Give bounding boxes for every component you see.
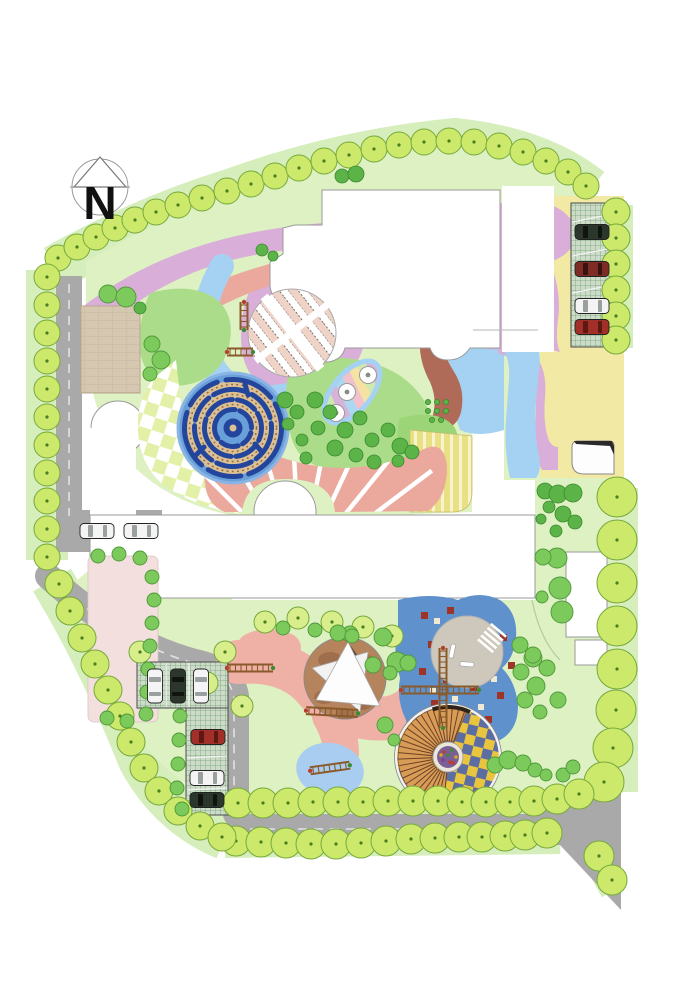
shrub <box>349 448 363 462</box>
shrub <box>365 433 379 447</box>
shrub <box>536 514 546 524</box>
tree <box>573 173 599 199</box>
tree <box>596 690 636 730</box>
green-tree <box>517 692 533 708</box>
mound-dot <box>366 373 371 378</box>
tree <box>117 728 145 756</box>
tree <box>34 544 60 570</box>
green-tree <box>365 657 381 673</box>
green-tree <box>499 751 517 769</box>
green-tree <box>152 351 170 369</box>
tree <box>286 155 312 181</box>
plaza-tree <box>147 593 161 607</box>
plaza-tree <box>175 802 189 816</box>
car <box>191 730 225 745</box>
tree <box>34 460 60 486</box>
shrub <box>307 392 323 408</box>
mosaic-dot <box>451 761 455 765</box>
tree <box>34 516 60 542</box>
tree <box>68 624 96 652</box>
green-tree <box>116 287 136 307</box>
tree <box>361 136 387 162</box>
tree <box>411 129 437 155</box>
tree <box>597 649 637 689</box>
green-tree <box>536 591 548 603</box>
building-wing <box>90 428 136 528</box>
paving-square-cream <box>452 696 458 702</box>
mosaic-dot <box>439 753 443 757</box>
tree <box>564 779 594 809</box>
tree <box>336 142 362 168</box>
tree <box>34 376 60 402</box>
tree <box>436 128 462 154</box>
tree <box>34 264 60 290</box>
tree <box>189 185 215 211</box>
shrub <box>337 422 353 438</box>
tree <box>208 823 236 851</box>
tree <box>386 132 412 158</box>
shrub-dot <box>438 417 443 422</box>
shrub <box>381 423 395 437</box>
green-tree <box>533 705 547 719</box>
green-tree <box>513 664 529 680</box>
shrub <box>256 244 268 256</box>
tree <box>34 432 60 458</box>
white-pavilion <box>572 441 614 474</box>
shrub <box>300 452 312 464</box>
shrub-dot <box>434 408 439 413</box>
shrub <box>405 445 419 459</box>
green-tree <box>345 629 359 643</box>
green-tree <box>144 336 160 352</box>
tree <box>94 676 122 704</box>
north-label: N <box>83 177 116 229</box>
green-tree <box>525 647 541 663</box>
mosaic-dot <box>442 750 446 754</box>
shrub <box>323 405 337 419</box>
shrub <box>367 455 381 469</box>
green-tree <box>276 621 290 635</box>
shrub <box>353 411 367 425</box>
green-tree <box>374 628 392 646</box>
tree <box>597 865 627 895</box>
car <box>575 320 609 335</box>
tree <box>45 570 73 598</box>
plaza-tree <box>112 547 126 561</box>
green-tree <box>383 666 397 680</box>
car <box>194 669 209 703</box>
shrub-dot <box>443 408 448 413</box>
paving-square-red <box>447 607 454 614</box>
car <box>575 299 609 314</box>
tree <box>238 171 264 197</box>
green-tree <box>330 625 346 641</box>
plaza-tree <box>145 616 159 630</box>
shrub <box>335 169 349 183</box>
mosaic-dot <box>454 755 458 759</box>
mound-dot <box>345 390 350 395</box>
paving-square-cream <box>478 704 484 710</box>
green-tree <box>400 655 416 671</box>
mosaic-dot <box>450 748 454 752</box>
site-plan-canvas: N <box>0 0 699 989</box>
car <box>575 225 609 240</box>
bench <box>460 661 474 667</box>
tree <box>593 728 633 768</box>
maze-center-dot <box>230 425 237 432</box>
climbing-frame <box>241 300 248 332</box>
paving-square-cream <box>434 618 440 624</box>
tree <box>56 597 84 625</box>
green-tree <box>551 601 573 623</box>
tree <box>597 477 637 517</box>
car <box>190 771 224 786</box>
tree <box>34 404 60 430</box>
tree <box>165 192 191 218</box>
mosaic-dot <box>441 758 445 762</box>
tree <box>214 641 236 663</box>
shrub <box>311 421 325 435</box>
shrub <box>290 405 304 419</box>
plaza-tree <box>171 757 185 771</box>
shrub <box>392 455 404 467</box>
plaza-tree <box>173 709 187 723</box>
zone-blue-east-band <box>504 337 540 478</box>
tree <box>34 348 60 374</box>
tree <box>597 520 637 560</box>
car <box>171 669 186 703</box>
tree <box>597 606 637 646</box>
plaza-tree <box>145 570 159 584</box>
white-gap <box>502 186 554 352</box>
tree <box>34 320 60 346</box>
paving-square-red <box>497 692 504 699</box>
tree <box>214 178 240 204</box>
plaza-tree <box>143 639 157 653</box>
shrub <box>550 525 562 537</box>
mosaic-dot <box>446 753 450 757</box>
shrub <box>282 418 294 430</box>
ribbon-west <box>252 644 286 648</box>
shrub <box>134 302 146 314</box>
green-tree <box>527 677 545 695</box>
shrub-dot <box>434 399 439 404</box>
shrub-dot <box>425 408 430 413</box>
tan-paved-plaza <box>81 306 140 393</box>
shrub <box>277 392 293 408</box>
plaza-tree <box>172 733 186 747</box>
green-tree <box>539 660 555 676</box>
tree <box>311 148 337 174</box>
maze-wall-stub <box>245 384 248 395</box>
shrub-dot <box>443 399 448 404</box>
paving-square-red <box>421 612 428 619</box>
tree <box>287 607 309 629</box>
green-tree <box>550 692 566 708</box>
tree <box>461 129 487 155</box>
green-tree <box>566 760 580 774</box>
car <box>148 669 163 703</box>
shrub-dot <box>429 417 434 422</box>
site-plan: N <box>0 0 699 989</box>
green-tree <box>535 549 551 565</box>
shrub-dot <box>425 399 430 404</box>
shrub <box>268 251 278 261</box>
green-tree <box>549 577 571 599</box>
tree <box>532 818 562 848</box>
car <box>80 524 114 539</box>
shrub <box>296 434 308 446</box>
green-tree <box>540 769 552 781</box>
car <box>190 793 224 808</box>
car <box>124 524 158 539</box>
plaza-tree <box>133 551 147 565</box>
green-tree <box>308 623 322 637</box>
plaza-tree <box>120 714 134 728</box>
car <box>575 262 609 277</box>
plaza-tree <box>91 549 105 563</box>
pavilion-body <box>572 441 614 474</box>
green-tree <box>377 717 393 733</box>
plaza-tree <box>100 711 114 725</box>
tree <box>34 292 60 318</box>
paving-square-red <box>419 668 426 675</box>
green-tree <box>388 734 400 746</box>
green-tree <box>143 367 157 381</box>
tree <box>34 488 60 514</box>
plaza-tree <box>170 781 184 795</box>
green-tree <box>99 285 117 303</box>
tree <box>510 139 536 165</box>
green-tree <box>512 637 528 653</box>
shrub <box>348 166 364 182</box>
tree <box>81 650 109 678</box>
tree <box>254 611 276 633</box>
tree <box>486 133 512 159</box>
shrub <box>568 515 582 529</box>
shrub <box>327 440 343 456</box>
plaza-tree <box>139 707 153 721</box>
tree <box>602 198 630 226</box>
tree <box>597 563 637 603</box>
shrub <box>564 484 582 502</box>
shrub <box>543 501 555 513</box>
leaf-striped-plaza <box>248 289 336 377</box>
tree <box>262 163 288 189</box>
tree <box>231 695 253 717</box>
